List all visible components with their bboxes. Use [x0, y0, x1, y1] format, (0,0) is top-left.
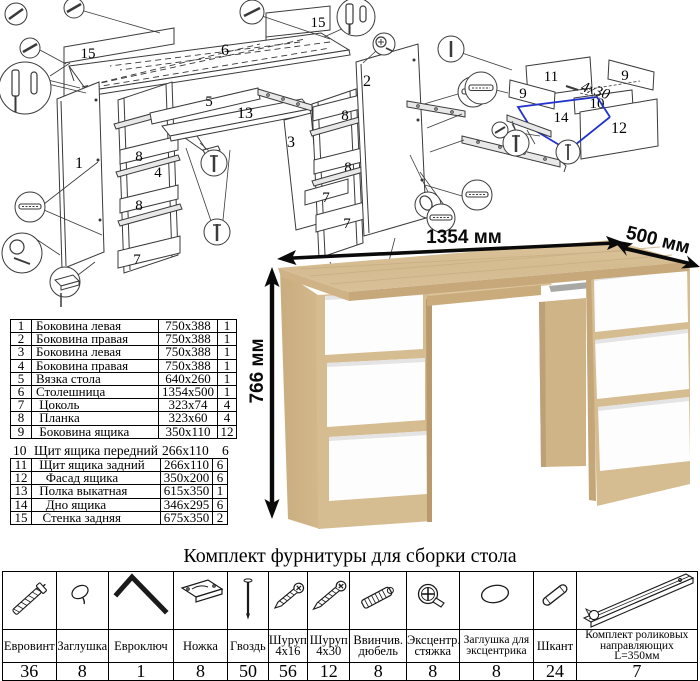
- svg-text:1: 1: [75, 155, 83, 172]
- svg-text:6: 6: [221, 42, 229, 59]
- svg-text:15: 15: [81, 46, 96, 62]
- svg-text:8: 8: [135, 198, 143, 214]
- svg-text:15: 15: [311, 15, 326, 31]
- svg-text:13: 13: [237, 105, 253, 122]
- svg-text:766 мм: 766 мм: [247, 338, 268, 403]
- svg-text:9: 9: [519, 86, 527, 102]
- svg-text:14: 14: [554, 110, 570, 126]
- svg-text:1354 мм: 1354 мм: [426, 227, 502, 248]
- svg-text:12: 12: [611, 120, 627, 137]
- svg-text:3: 3: [287, 134, 295, 151]
- svg-text:4: 4: [154, 165, 162, 181]
- svg-text:7: 7: [343, 216, 351, 232]
- svg-text:5: 5: [205, 94, 213, 110]
- svg-text:11: 11: [544, 69, 558, 85]
- svg-text:8: 8: [135, 149, 143, 165]
- svg-text:7: 7: [133, 252, 141, 268]
- svg-text:7: 7: [322, 190, 330, 206]
- svg-text:2: 2: [363, 73, 371, 90]
- svg-text:9: 9: [621, 68, 629, 84]
